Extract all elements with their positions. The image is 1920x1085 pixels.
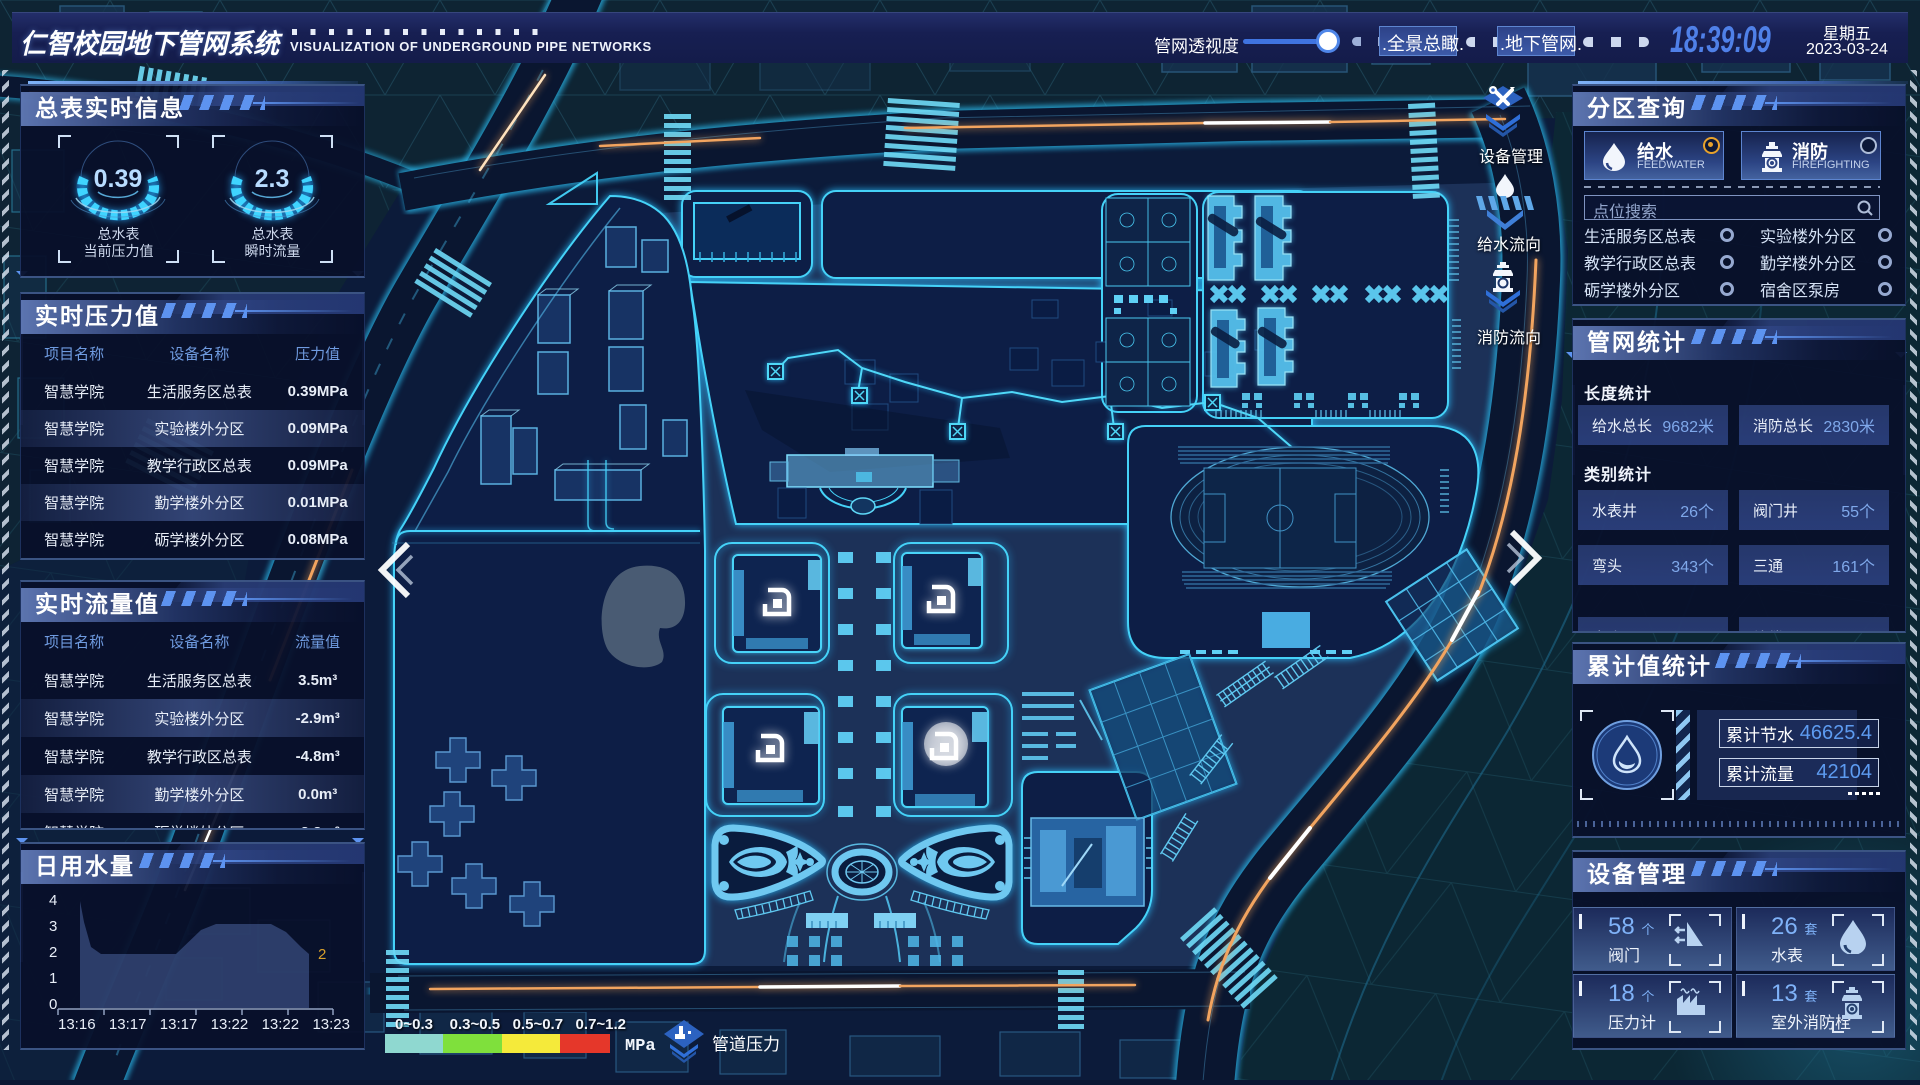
svg-text:1: 1	[49, 970, 57, 987]
svg-text:2.3: 2.3	[255, 165, 290, 193]
svg-text:2: 2	[318, 946, 326, 963]
svg-text:2: 2	[49, 944, 57, 961]
svg-text:4: 4	[49, 892, 57, 909]
svg-text:0: 0	[49, 996, 57, 1013]
svg-text:0.39: 0.39	[94, 165, 143, 193]
svg-text:3: 3	[49, 918, 57, 935]
